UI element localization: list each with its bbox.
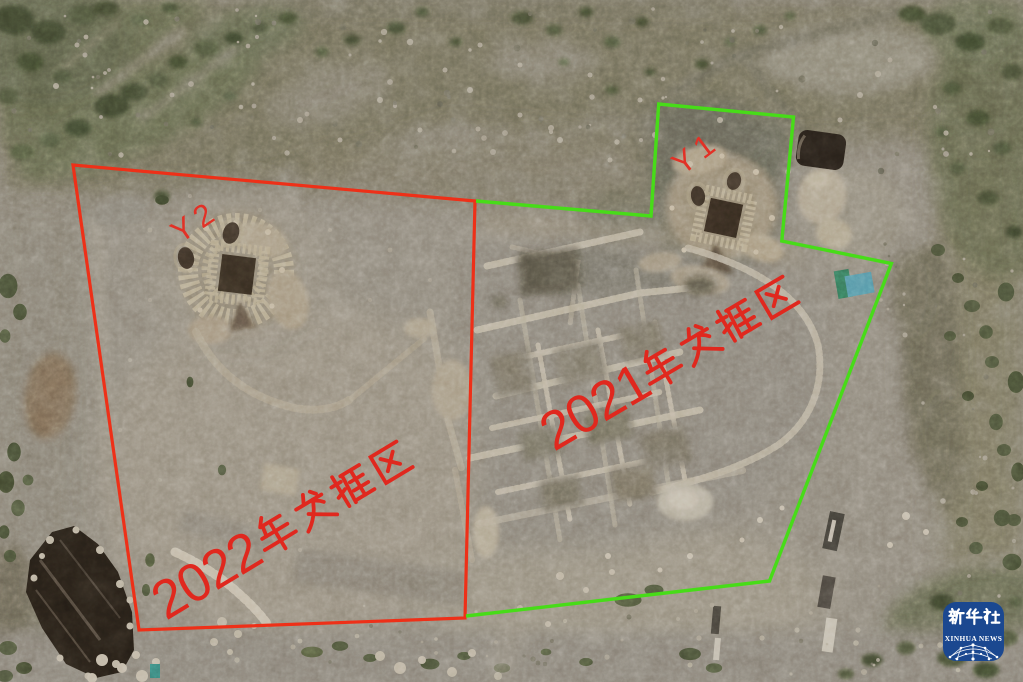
svg-text:XINHUA NEWS: XINHUA NEWS bbox=[945, 634, 1003, 643]
